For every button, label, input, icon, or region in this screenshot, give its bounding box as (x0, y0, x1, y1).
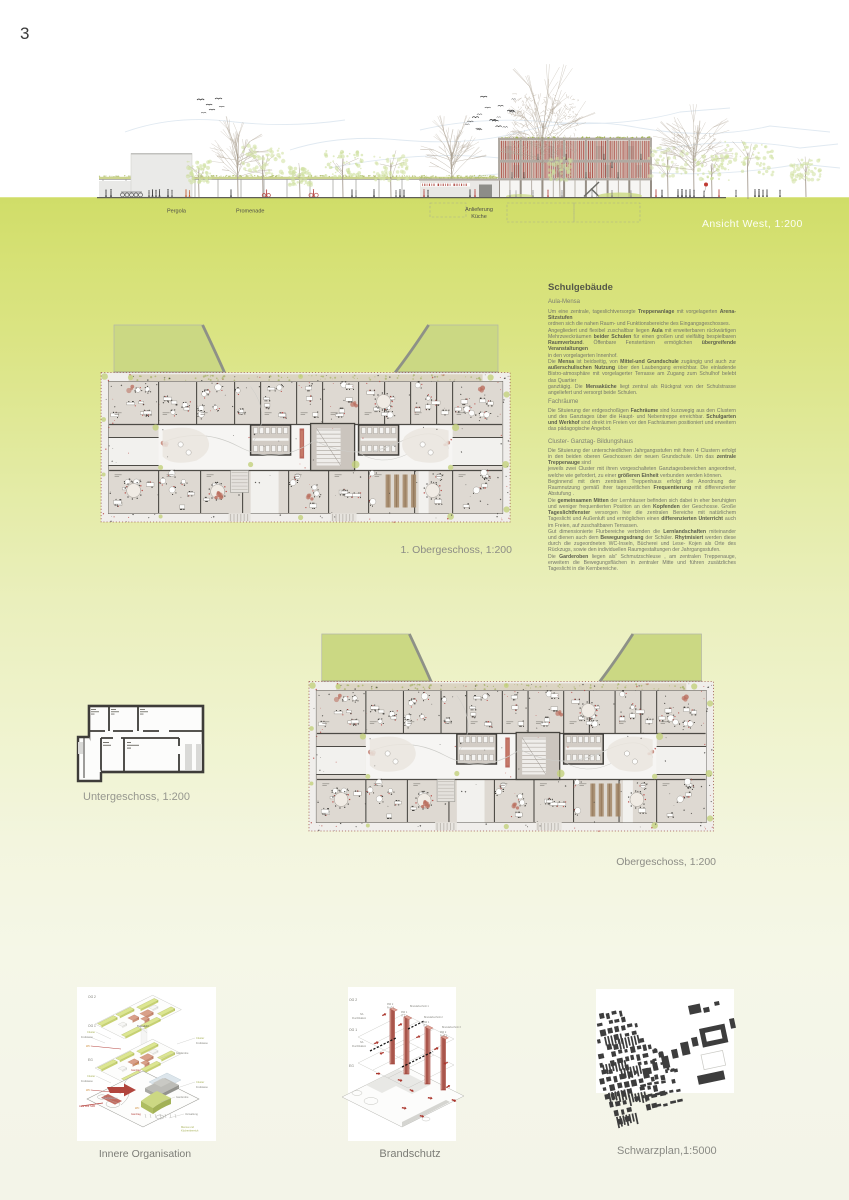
svg-text:Brandabschnitt 1: Brandabschnitt 1 (410, 1005, 429, 1008)
svg-text:WC: WC (86, 1088, 90, 1092)
svg-text:Garderobe: Garderobe (176, 1095, 189, 1099)
svg-text:Brandabschnitt 3: Brandabschnitt 3 (442, 1026, 461, 1029)
svg-text:WC: WC (135, 1062, 139, 1066)
svg-text:Cluster: Cluster (87, 1074, 95, 1078)
svg-text:Fluchtbalkon: Fluchtbalkon (352, 1017, 367, 1020)
svg-text:Ganztag: Ganztag (131, 1112, 141, 1116)
svg-text:EG: EG (349, 1064, 354, 1068)
svg-text:NA: NA (360, 1013, 364, 1016)
svg-text:WC: WC (135, 1106, 139, 1110)
svg-text:OG 2: OG 2 (349, 998, 357, 1002)
svg-text:WC: WC (86, 1044, 90, 1048)
svg-text:fT 1: fT 1 (401, 1014, 406, 1017)
svg-text:Freiklasse: Freiklasse (81, 1079, 93, 1083)
svg-text:FraT 1: FraT 1 (387, 1006, 395, 1009)
svg-text:fT 2: fT 2 (423, 1024, 428, 1027)
svg-text:Tageslicht: Tageslicht (137, 1024, 149, 1028)
svg-text:OG 1: OG 1 (88, 1024, 96, 1028)
svg-text:Brandabschnitt 2: Brandabschnitt 2 (424, 1016, 443, 1019)
svg-text:Cluster: Cluster (87, 1030, 95, 1034)
svg-text:Verwaltung: Verwaltung (185, 1112, 198, 1116)
svg-text:Freiklasse: Freiklasse (196, 1041, 208, 1045)
svg-text:Fluchtbalkon: Fluchtbalkon (352, 1045, 367, 1048)
svg-text:Cluster: Cluster (196, 1080, 204, 1084)
svg-text:Freiklasse: Freiklasse (81, 1035, 93, 1039)
svg-text:NA: NA (360, 1041, 364, 1044)
svg-text:Freiklasse: Freiklasse (196, 1085, 208, 1089)
svg-text:OG 1: OG 1 (349, 1028, 357, 1032)
svg-text:Küchenbereich: Küchenbereich (181, 1128, 199, 1132)
svg-text:FraT 2: FraT 2 (440, 1034, 448, 1037)
svg-text:OG 2: OG 2 (88, 995, 96, 999)
svg-text:Mensa und: Mensa und (181, 1125, 194, 1129)
svg-text:Garderobe: Garderobe (176, 1051, 189, 1055)
svg-text:Ganztag: Ganztag (131, 1068, 141, 1072)
svg-text:Cluster: Cluster (196, 1036, 204, 1040)
svg-text:EG: EG (88, 1058, 93, 1062)
